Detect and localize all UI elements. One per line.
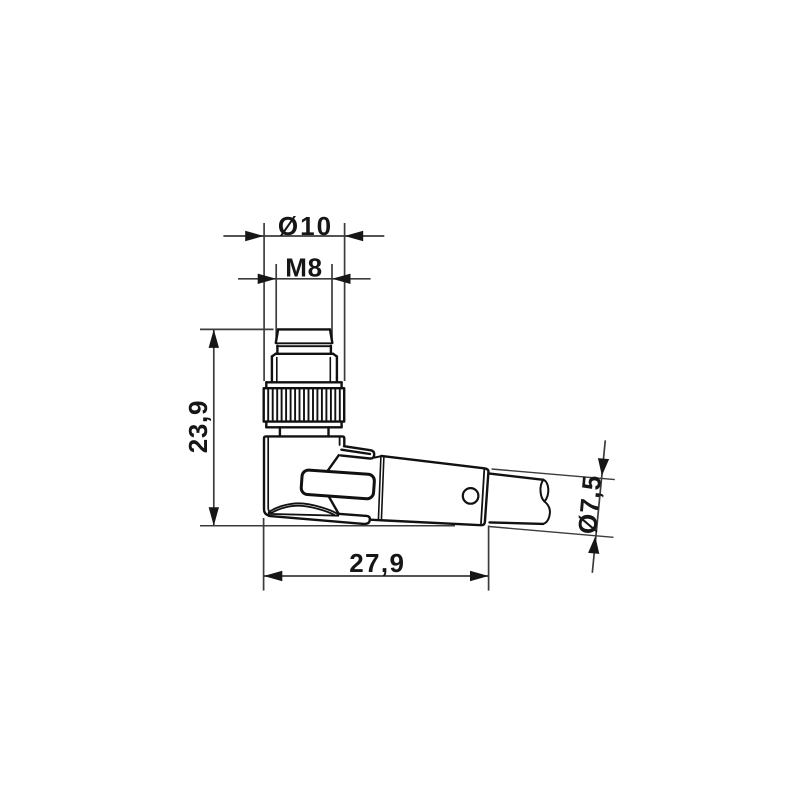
svg-text:23,9: 23,9 bbox=[183, 400, 213, 453]
svg-text:Ø10: Ø10 bbox=[278, 211, 333, 241]
svg-text:27,9: 27,9 bbox=[349, 548, 405, 578]
svg-text:M8: M8 bbox=[285, 253, 323, 283]
svg-text:Ø7,5: Ø7,5 bbox=[572, 474, 607, 536]
